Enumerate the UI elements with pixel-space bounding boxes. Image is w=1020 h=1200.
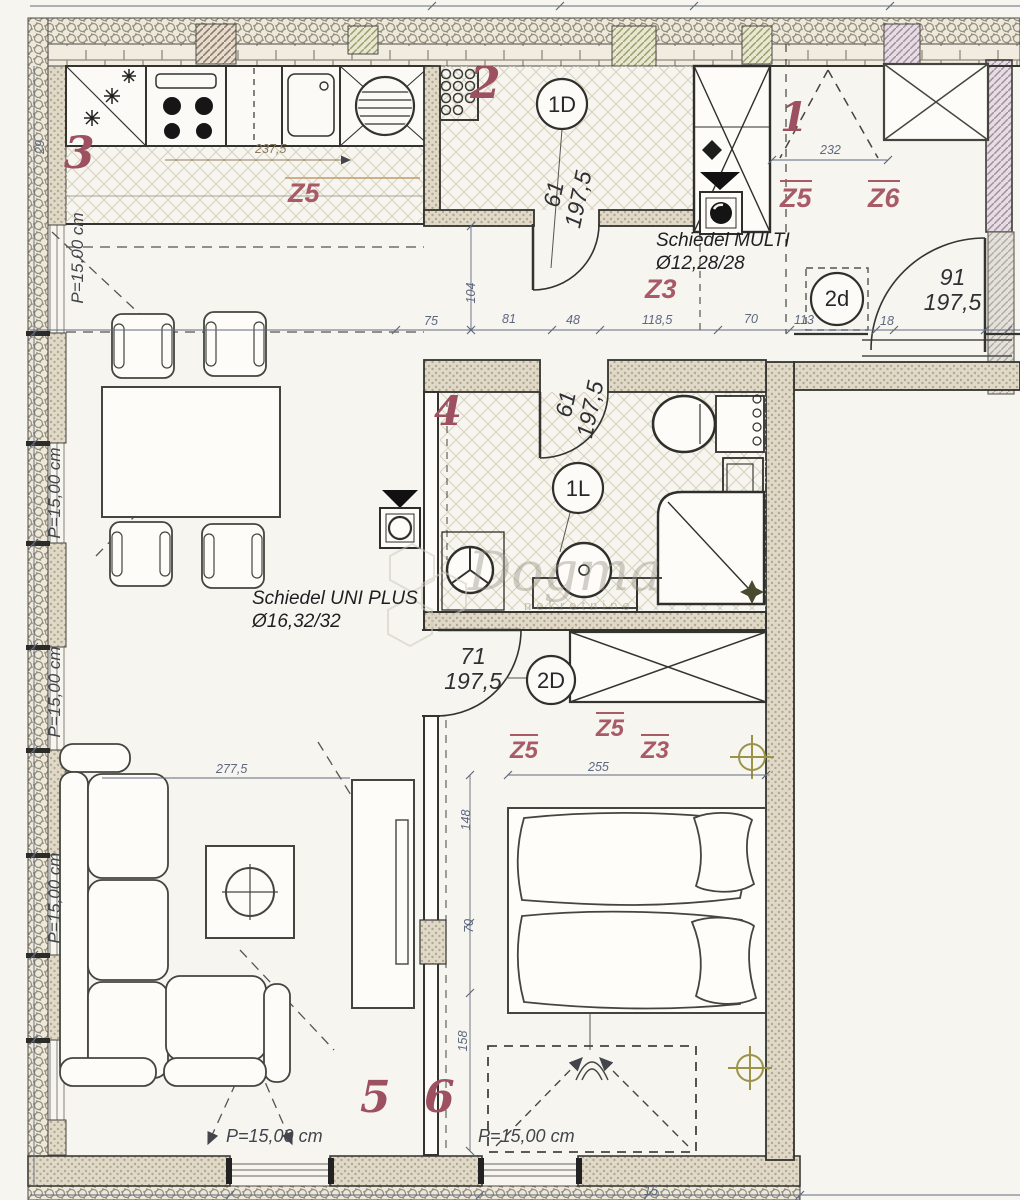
dining-set (102, 312, 280, 588)
parapet-label-left-4: P=15,00 cm (45, 838, 65, 958)
double-bed-icon (508, 808, 766, 1013)
door-size-bedroom: 71 197,5 (428, 644, 518, 694)
parapet-label-bottom-2: P=15,00 cm (478, 1126, 575, 1147)
dim-118-5: 118,5 (642, 313, 672, 327)
parapet-label-left-3: P=15,00 cm (45, 632, 65, 752)
dim-hall-v: 104 (464, 273, 478, 313)
parapet-label-left-1: P=15,00 cm (68, 198, 88, 318)
zone-room1-b: Z6 (868, 180, 900, 214)
parapet-label-left-2: P=15,00 cm (45, 433, 65, 553)
dim-81: 81 (502, 312, 516, 326)
dim-158: 158 (456, 1021, 470, 1061)
dim-18: 18 (880, 314, 894, 328)
dim-148: 148 (459, 800, 473, 840)
dim-255: 255 (588, 760, 609, 774)
dim-48: 48 (566, 313, 580, 327)
door-tag-1d: 1D (536, 92, 588, 118)
shower-icon (658, 492, 764, 604)
watermark-text: Dogma (468, 540, 662, 603)
room-number-1: 1 (780, 94, 808, 141)
dim-113: 113 (794, 313, 814, 327)
dim-232: 232 (820, 143, 841, 157)
door-tag-2d: 2d (811, 286, 863, 312)
room-number-4: 4 (434, 388, 462, 435)
ceiling-lamp-icon (576, 1062, 608, 1080)
zone-room1-a: Z5 (780, 180, 812, 214)
chair-icon (112, 314, 174, 378)
chimney-multi-icon (694, 66, 770, 234)
floor-plan-page: Dogma nekretnine 3 2 1 4 5 6 1D 2d 1L 2D… (0, 0, 1020, 1200)
chair-icon (202, 524, 264, 588)
door-tag-1l: 1L (552, 476, 604, 502)
dim-70: 70 (744, 312, 758, 326)
door-tag-2d-bedroom: 2D (525, 668, 577, 694)
dim-277-5: 277,5 (216, 762, 247, 776)
dim-left-v: 29 (33, 131, 47, 163)
dim-kitchen-run: 237,5 (255, 142, 286, 156)
dining-table (102, 387, 280, 517)
pillow-icon (692, 918, 756, 1004)
room-number-5: 5 (360, 1072, 391, 1123)
parapet-label-bottom-1: P=15,00 cm (226, 1126, 323, 1147)
chair-icon (204, 312, 266, 376)
watermark-subtext: nekretnine (524, 598, 635, 613)
dim-75: 75 (424, 314, 438, 328)
zone-bedroom-a: Z5 (596, 712, 624, 743)
room-number-3: 3 (64, 128, 95, 179)
zone-kitchen: Z5 (288, 178, 320, 209)
dim-15: 15 (644, 1184, 658, 1198)
chimney-uniplus-label: Schiedel UNI PLUS Ø16,32/32 (252, 588, 418, 634)
chair-icon (110, 522, 172, 586)
room-number-2: 2 (470, 58, 501, 109)
zone-hall: Z3 (645, 274, 677, 305)
door-size-room1: 91 197,5 (900, 265, 1005, 315)
zone-bedroom-c: Z3 (641, 734, 669, 765)
dim-70b: 70 (462, 906, 476, 946)
coffee-table-icon (206, 846, 294, 938)
kitchen-counter (66, 66, 430, 146)
sink-icon (288, 74, 334, 136)
room-number-6: 6 (424, 1072, 455, 1123)
tv-bench-icon (352, 780, 414, 1008)
zone-bedroom-b: Z5 (510, 734, 538, 765)
chimney-multi-label: Schiedel MULTI Ø12,28/28 (656, 230, 790, 276)
pillow-icon (694, 813, 754, 892)
